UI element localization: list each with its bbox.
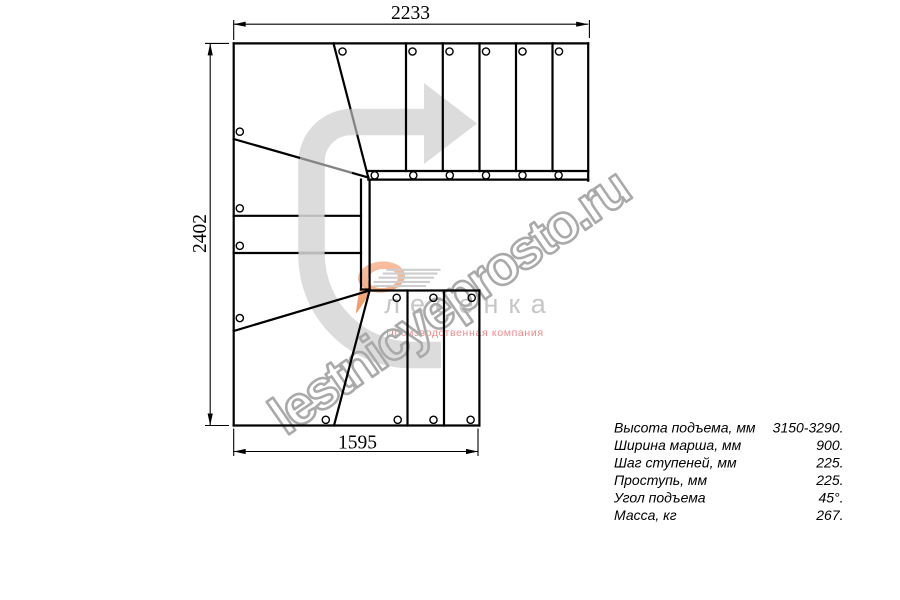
svg-text:3150-3290.: 3150-3290. [773, 420, 844, 436]
svg-text:Угол подъема: Угол подъема [613, 490, 706, 506]
svg-text:225.: 225. [815, 455, 843, 471]
svg-text:45°.: 45°. [818, 490, 843, 506]
svg-text:267.: 267. [815, 507, 843, 523]
svg-text:2233: 2233 [391, 3, 430, 24]
svg-text:225.: 225. [815, 472, 843, 488]
svg-text:Ширина марша, мм: Ширина марша, мм [614, 437, 742, 453]
svg-text:1595: 1595 [338, 432, 377, 453]
svg-text:Масса, кг: Масса, кг [614, 507, 677, 523]
svg-text:Шаг ступеней, мм: Шаг ступеней, мм [614, 455, 737, 471]
svg-text:2402: 2402 [190, 214, 211, 253]
svg-text:Высота подъема, мм: Высота подъема, мм [614, 420, 756, 436]
svg-text:Проступь, мм: Проступь, мм [614, 472, 708, 488]
svg-text:900.: 900. [816, 437, 843, 453]
